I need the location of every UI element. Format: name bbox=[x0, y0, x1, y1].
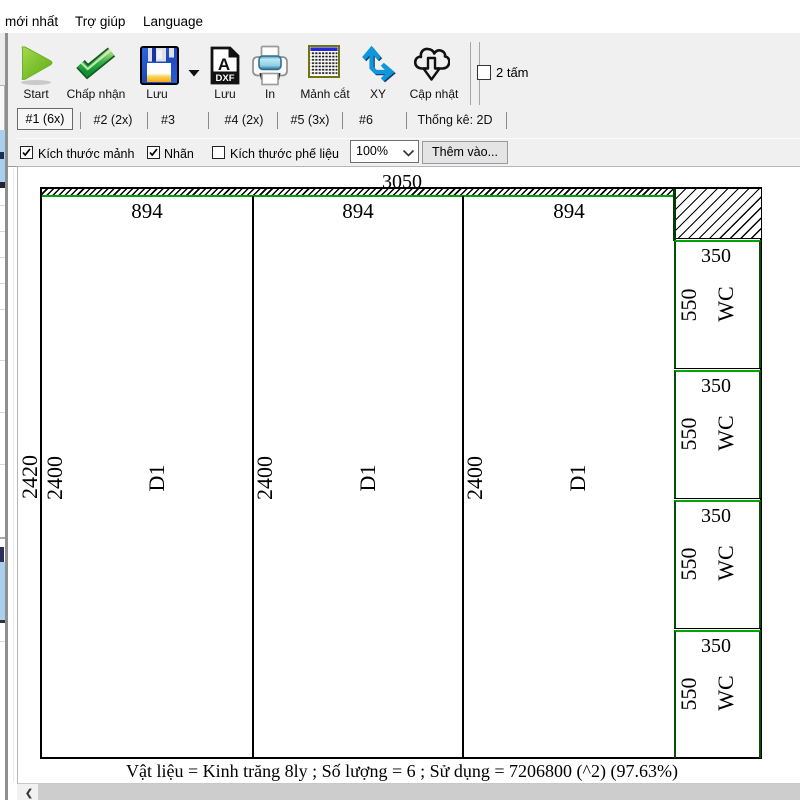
svg-text:DXF: DXF bbox=[216, 73, 235, 84]
svg-text:A: A bbox=[218, 55, 230, 74]
